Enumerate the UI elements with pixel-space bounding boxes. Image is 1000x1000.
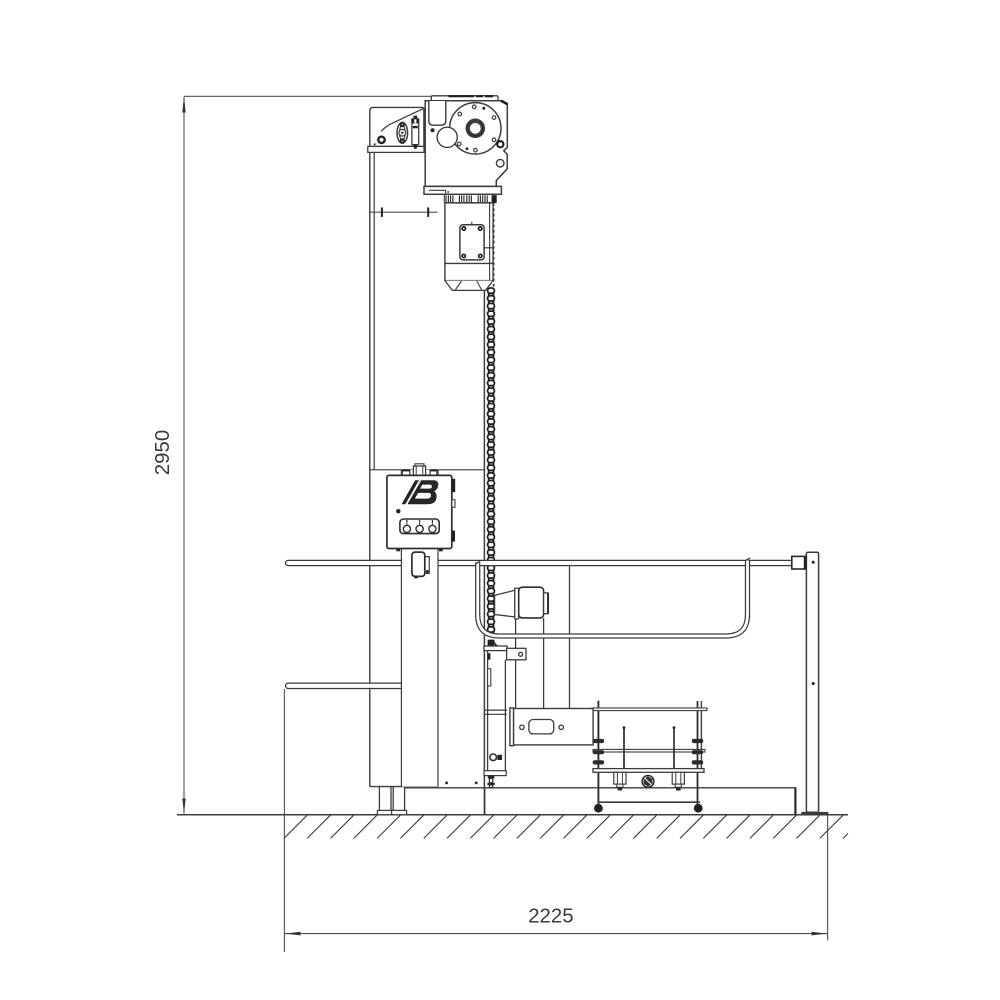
svg-text:2225: 2225: [528, 905, 573, 927]
svg-text:2950: 2950: [152, 430, 174, 475]
